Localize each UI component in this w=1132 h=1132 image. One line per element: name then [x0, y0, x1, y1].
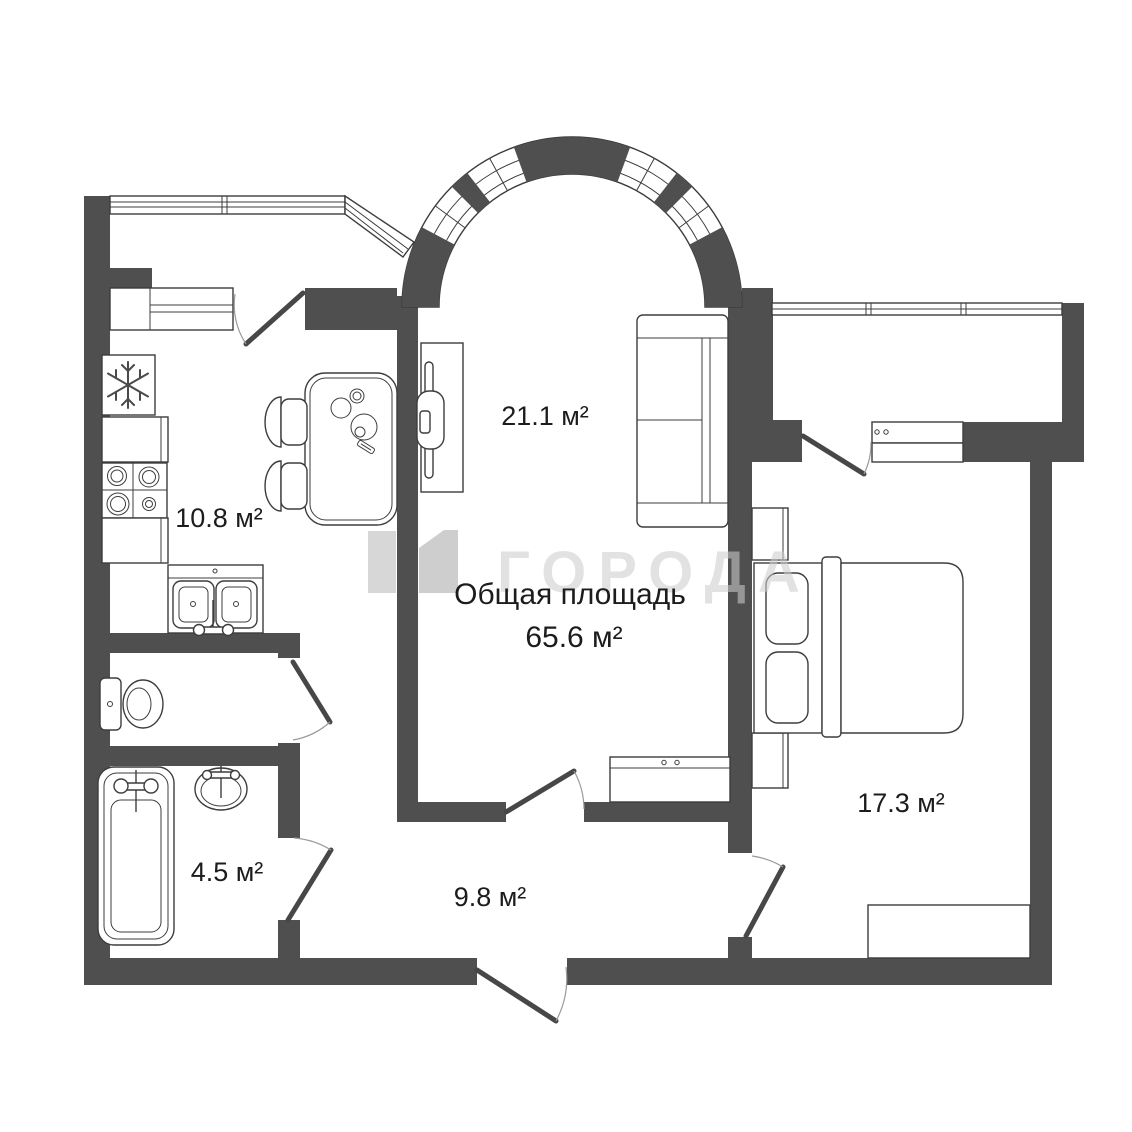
bathroom-area-label: 4.5 м²	[191, 857, 264, 887]
bedroom-loggia-window	[872, 422, 963, 462]
nightstand	[752, 733, 788, 788]
entrance-door	[477, 967, 567, 1021]
dresser	[610, 757, 730, 802]
hallway-area-label: 9.8 м²	[454, 882, 527, 912]
bathroom-door	[288, 838, 331, 920]
wc-door	[293, 662, 330, 740]
toilet	[100, 678, 163, 730]
bay-window-arch	[402, 137, 742, 307]
kitchen-fixtures	[102, 355, 397, 636]
tv-unit	[417, 343, 463, 492]
balcony-window-top-left	[110, 196, 414, 257]
bathtub	[98, 767, 174, 945]
balcony-door	[803, 436, 871, 474]
floor-plan: ГОРОДА 21.1 м² 10.8 м² 17.3 м² 4.5 м² 9.…	[0, 0, 1132, 1132]
kitchen-window	[110, 288, 233, 330]
dining-table	[305, 373, 397, 525]
floor-plan-svg: ГОРОДА 21.1 м² 10.8 м² 17.3 м² 4.5 м² 9.…	[0, 0, 1132, 1132]
total-area-value: 65.6 м²	[525, 621, 622, 654]
living-room-area-label: 21.1 м²	[501, 401, 589, 431]
kitchen-door	[234, 293, 303, 344]
sofa	[637, 315, 728, 527]
living-room-door	[506, 771, 584, 812]
wardrobe	[868, 905, 1030, 958]
kitchen-sink	[168, 565, 263, 636]
chair	[265, 397, 307, 447]
kitchen-cabinet	[102, 518, 168, 563]
kitchen-area-label: 10.8 м²	[175, 503, 263, 533]
loggia-window-top-right	[772, 303, 1062, 315]
chair	[265, 461, 307, 511]
bathroom-fixtures	[98, 766, 247, 945]
bedroom-door	[746, 856, 783, 936]
watermark-logo-left	[368, 531, 396, 593]
bedroom-area-label: 17.3 м²	[857, 788, 945, 818]
kitchen-counter	[102, 417, 168, 462]
stove	[102, 463, 167, 518]
watermark-logo-right	[419, 530, 458, 593]
wc-fixtures	[100, 678, 163, 730]
wash-basin	[195, 766, 247, 810]
total-area-title: Общая площадь	[454, 578, 686, 611]
